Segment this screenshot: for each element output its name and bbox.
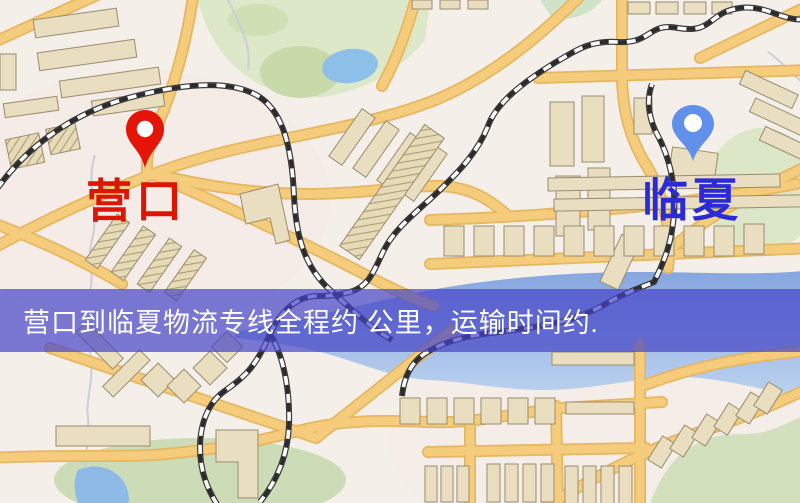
- destination-pin-icon[interactable]: [672, 105, 714, 163]
- route-info-text: 营口到临夏物流专线全程约 公里，运输时间约.: [0, 301, 599, 340]
- destination-label: 临夏: [642, 177, 742, 223]
- origin-pin-icon[interactable]: [126, 110, 164, 170]
- origin-label: 营口: [86, 178, 186, 224]
- map-image[interactable]: [0, 0, 800, 503]
- map-view[interactable]: 营口 临夏 营口到临夏物流专线全程约 公里，运输时间约.: [0, 0, 800, 503]
- route-info-banner: 营口到临夏物流专线全程约 公里，运输时间约.: [0, 289, 800, 352]
